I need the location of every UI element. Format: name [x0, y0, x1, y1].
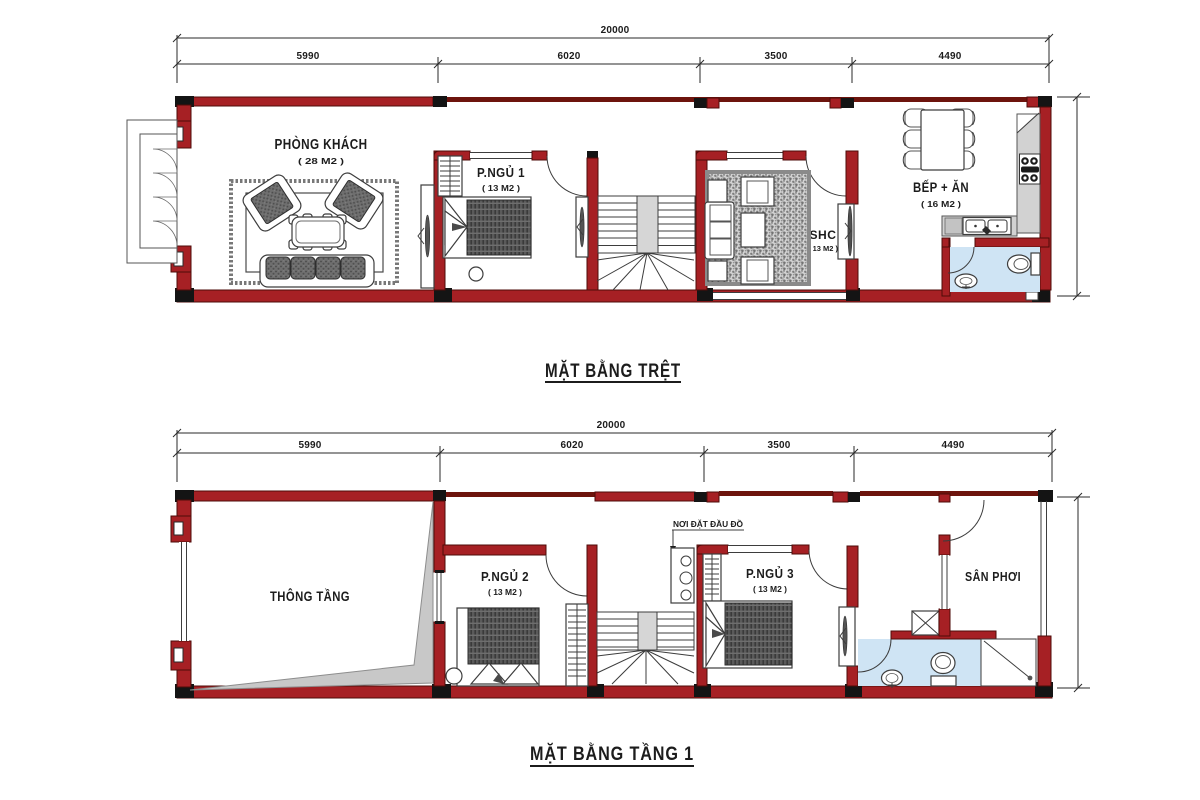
- svg-text:5990: 5990: [296, 51, 319, 62]
- svg-text:( 13 M2 ): ( 13 M2 ): [488, 587, 522, 597]
- svg-text:4490: 4490: [938, 51, 961, 62]
- svg-text:SÂN PHƠI: SÂN PHƠI: [965, 569, 1021, 584]
- svg-text:THÔNG TẦNG: THÔNG TẦNG: [270, 587, 350, 604]
- svg-text:20000: 20000: [601, 25, 630, 36]
- svg-text:6020: 6020: [560, 440, 583, 451]
- svg-text:( 13 M2 ): ( 13 M2 ): [482, 183, 520, 193]
- svg-text:MẶT BẰNG TẦNG 1: MẶT BẰNG TẦNG 1: [530, 743, 694, 765]
- svg-text:P.NGỦ 3: P.NGỦ 3: [746, 566, 794, 581]
- svg-text:( 13 M2 ): ( 13 M2 ): [753, 584, 787, 594]
- svg-text:3500: 3500: [764, 51, 787, 62]
- svg-text:( 13 M2 ): ( 13 M2 ): [808, 246, 838, 253]
- svg-text:( 28 M2 ): ( 28 M2 ): [298, 156, 344, 166]
- svg-text:MẶT BẰNG TRỆT: MẶT BẰNG TRỆT: [545, 360, 681, 382]
- svg-text:P.NGỦ 2: P.NGỦ 2: [481, 569, 529, 584]
- svg-text:P.NGỦ 1: P.NGỦ 1: [477, 165, 525, 180]
- svg-text:( 16 M2 ): ( 16 M2 ): [921, 199, 961, 209]
- svg-text:BẾP + ĂN: BẾP + ĂN: [913, 180, 969, 195]
- svg-text:SHC: SHC: [810, 228, 837, 242]
- svg-text:5990: 5990: [298, 440, 321, 451]
- svg-text:6020: 6020: [557, 51, 580, 62]
- svg-text:4490: 4490: [941, 440, 964, 451]
- svg-text:PHÒNG KHÁCH: PHÒNG KHÁCH: [275, 135, 368, 153]
- svg-text:20000: 20000: [597, 420, 626, 431]
- svg-text:NƠI ĐẶT ĐẦU ĐỒ: NƠI ĐẶT ĐẦU ĐỒ: [673, 519, 743, 529]
- svg-text:3500: 3500: [767, 440, 790, 451]
